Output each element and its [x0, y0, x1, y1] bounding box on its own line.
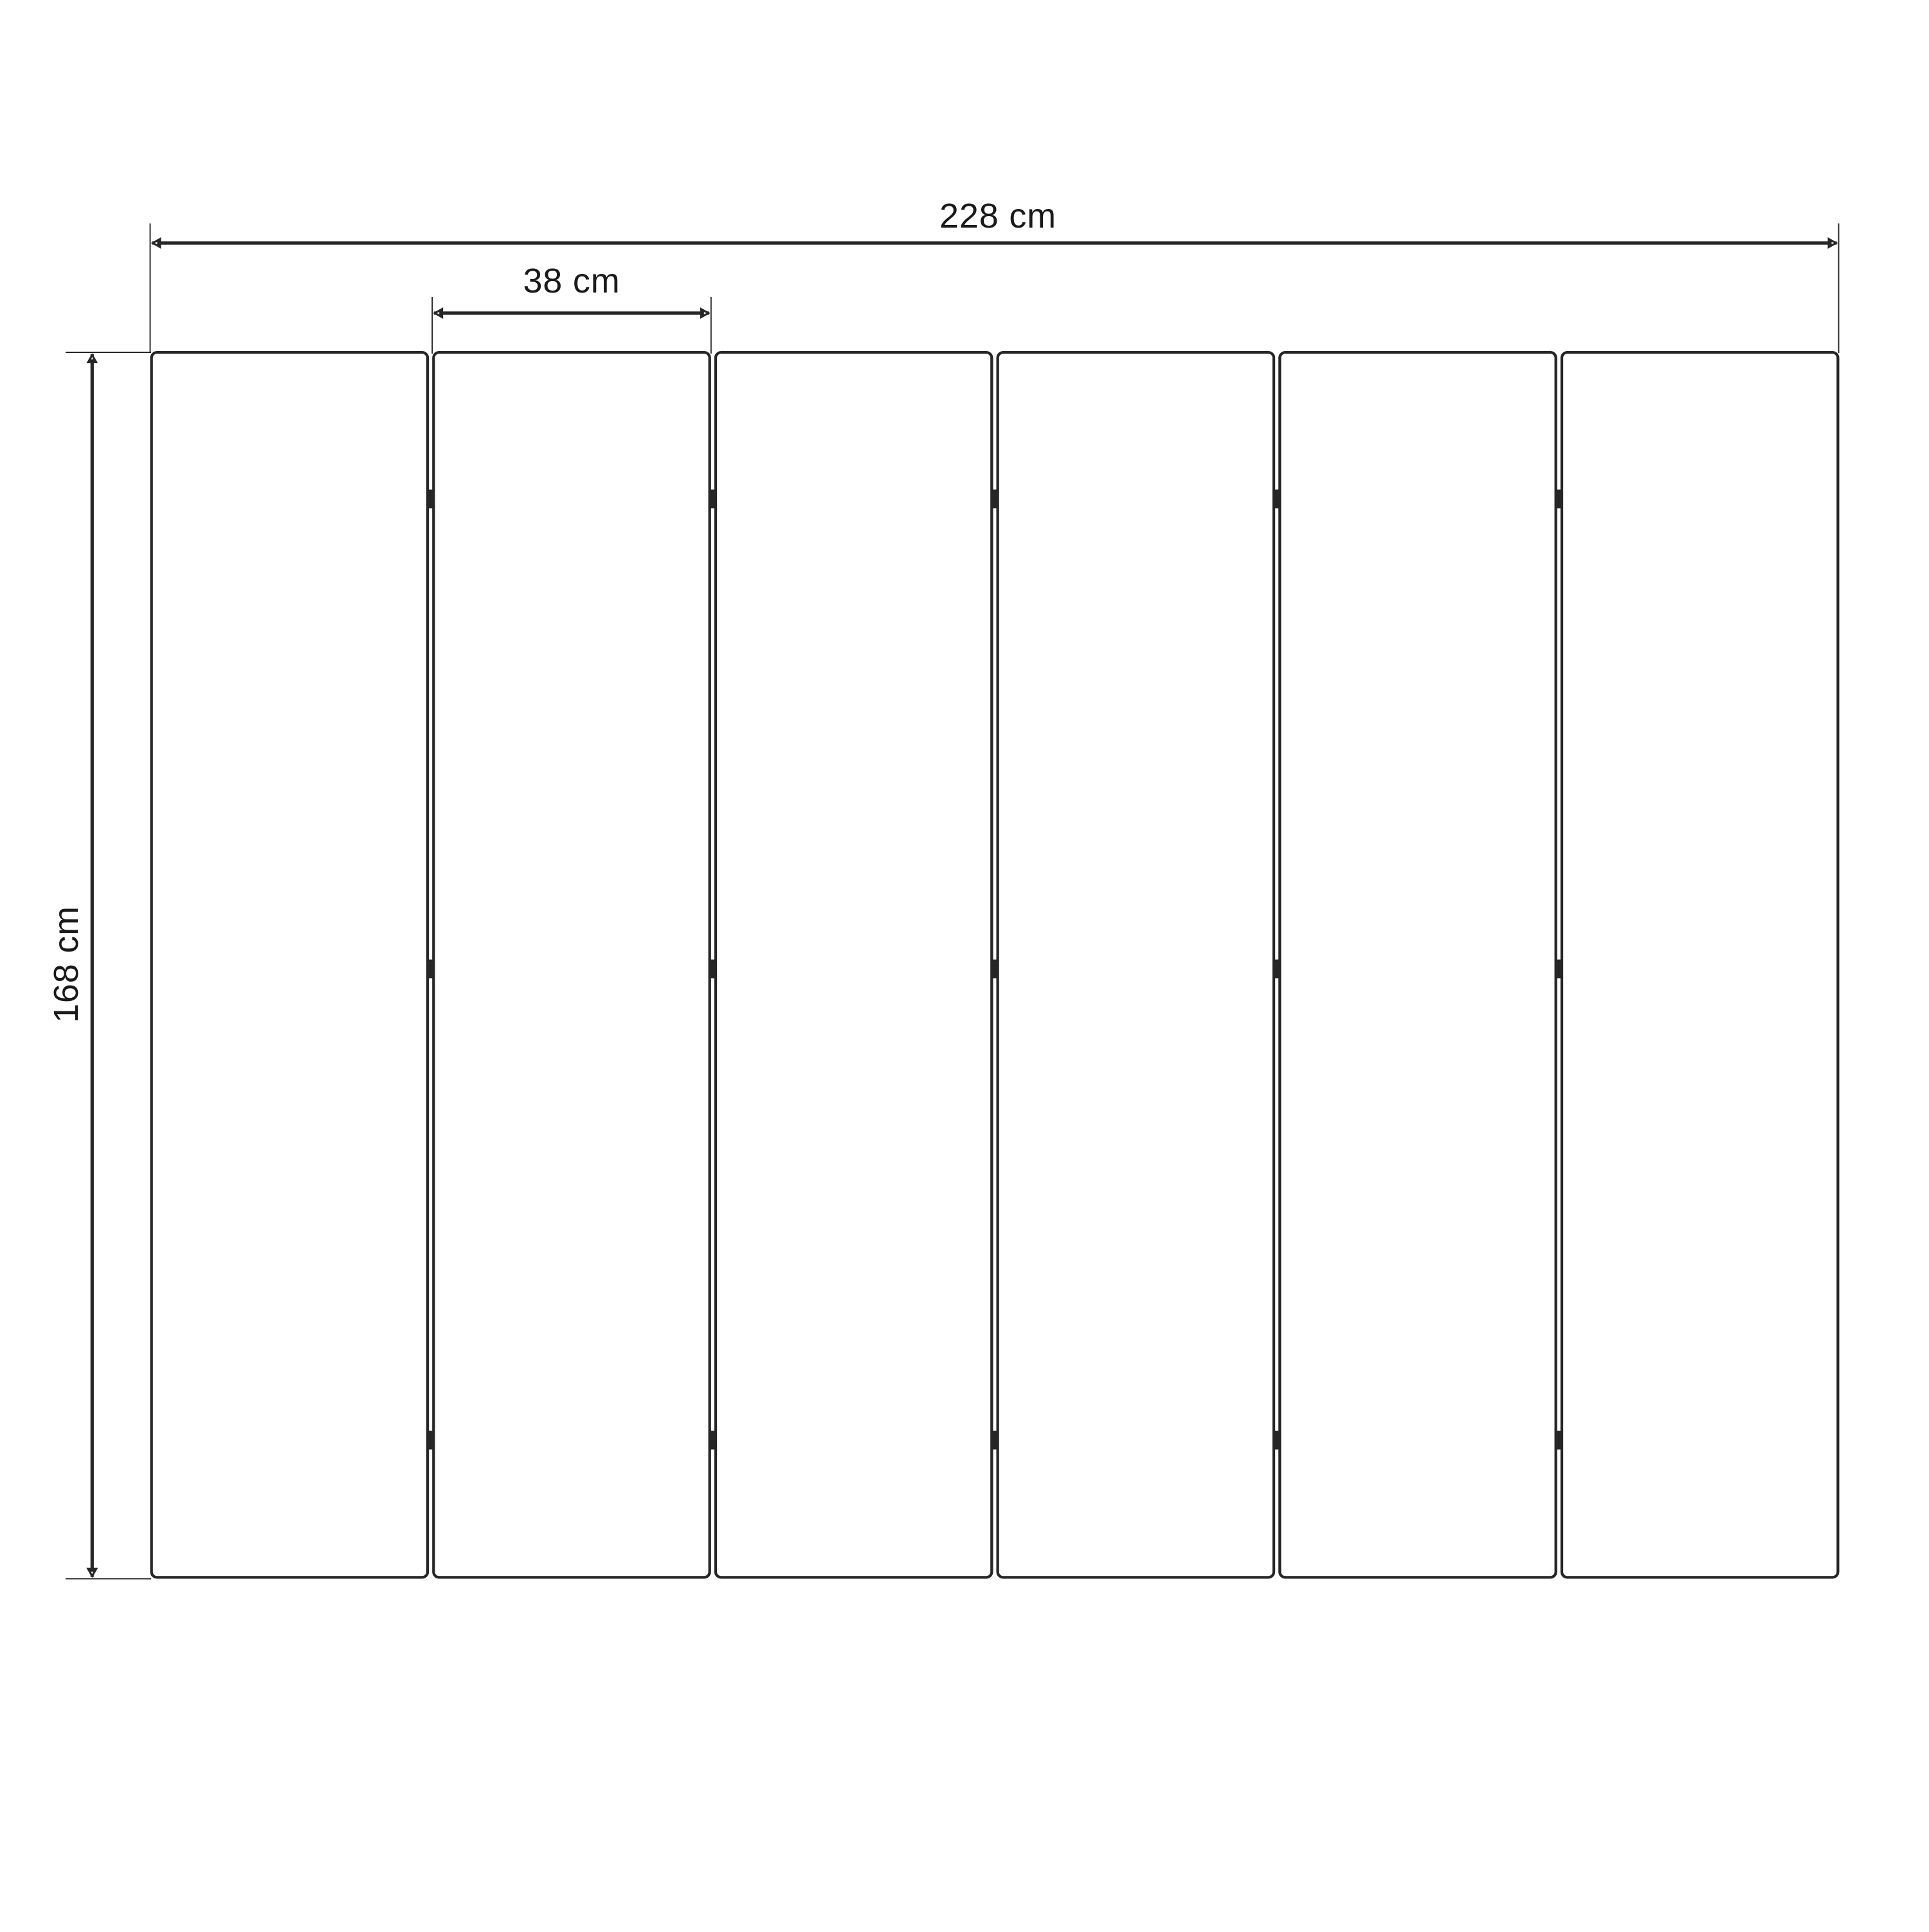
svg-text:228 cm: 228 cm: [939, 197, 1056, 235]
svg-text:38 cm: 38 cm: [523, 262, 620, 300]
svg-text:168 cm: 168 cm: [47, 906, 86, 1023]
